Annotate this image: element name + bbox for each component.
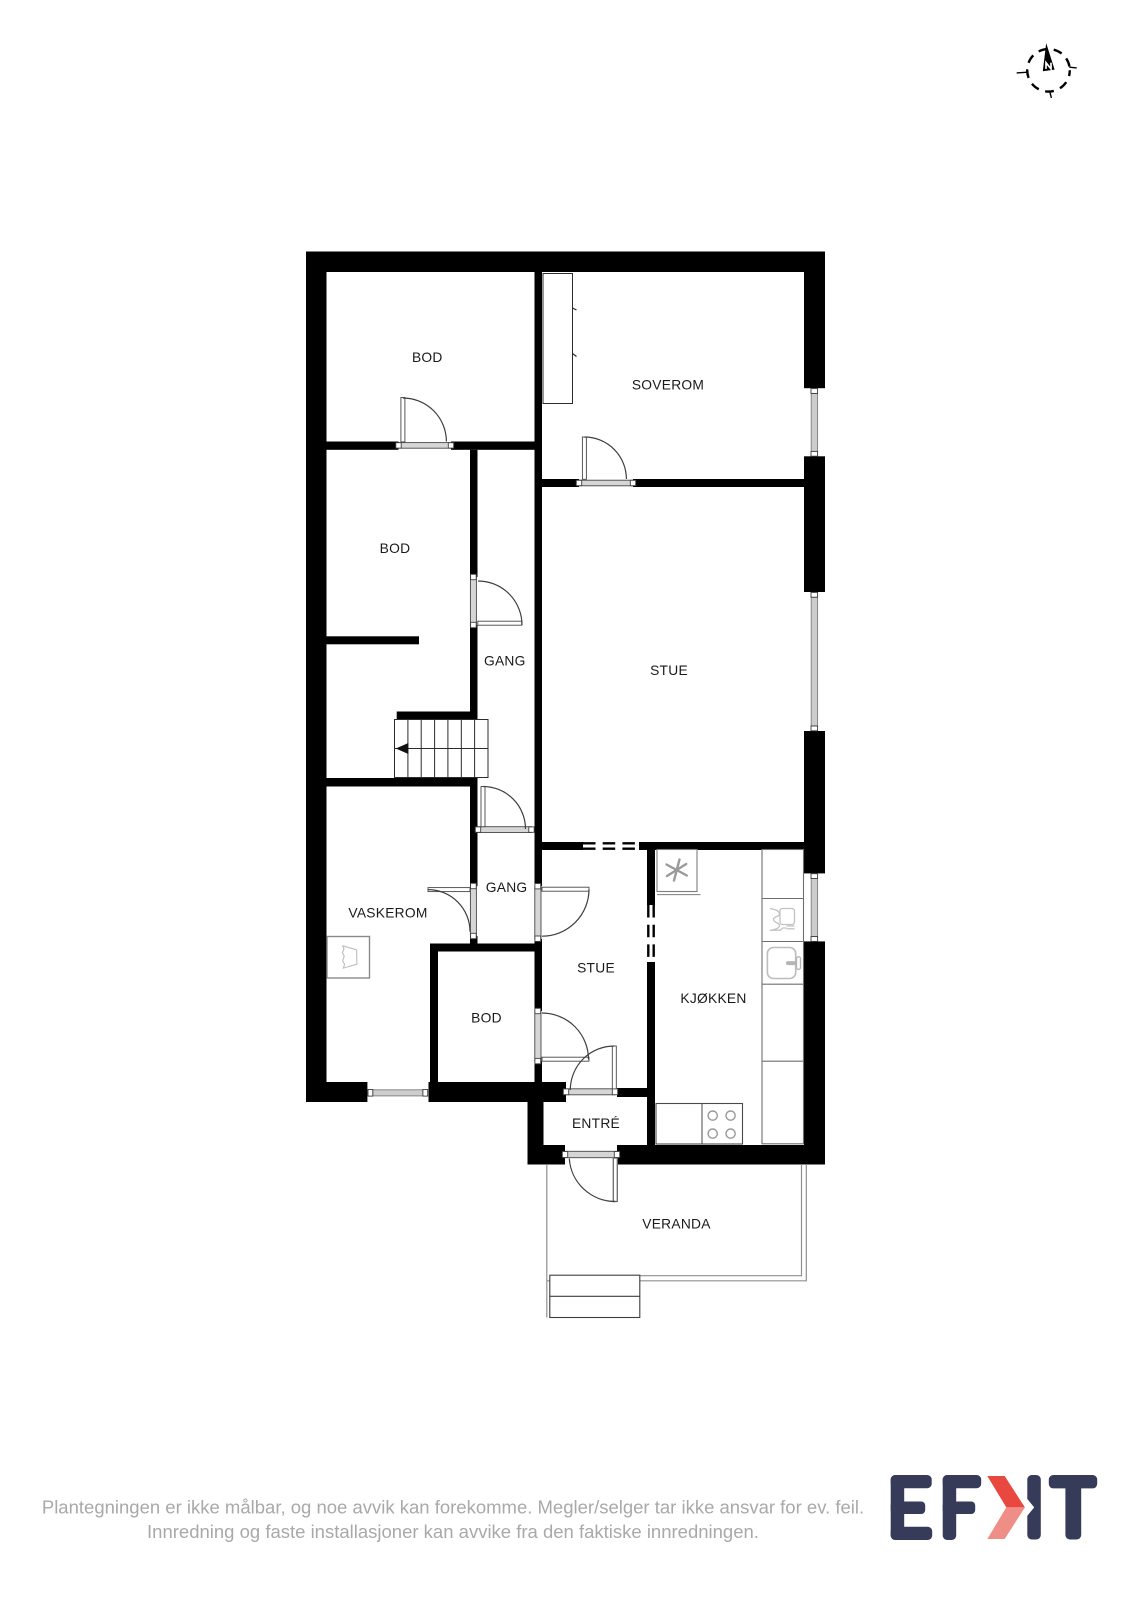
svg-text:GANG: GANG — [486, 880, 528, 895]
svg-text:BOD: BOD — [471, 1011, 502, 1026]
svg-text:VASKEROM: VASKEROM — [348, 906, 427, 921]
svg-text:BOD: BOD — [380, 541, 411, 556]
svg-text:ENTRÉ: ENTRÉ — [572, 1115, 620, 1131]
svg-text:GANG: GANG — [484, 654, 526, 669]
svg-text:VERANDA: VERANDA — [642, 1216, 711, 1231]
svg-text:BOD: BOD — [412, 350, 443, 365]
svg-text:KJØKKEN: KJØKKEN — [680, 991, 746, 1006]
svg-text:Innredning og faste installasj: Innredning og faste installasjoner kan a… — [147, 1521, 759, 1542]
svg-text:SOVEROM: SOVEROM — [632, 378, 704, 393]
svg-text:STUE: STUE — [577, 961, 615, 976]
svg-text:STUE: STUE — [650, 663, 688, 678]
svg-text:Plantegningen er ikke målbar,: Plantegningen er ikke målbar, og noe avv… — [42, 1497, 864, 1518]
